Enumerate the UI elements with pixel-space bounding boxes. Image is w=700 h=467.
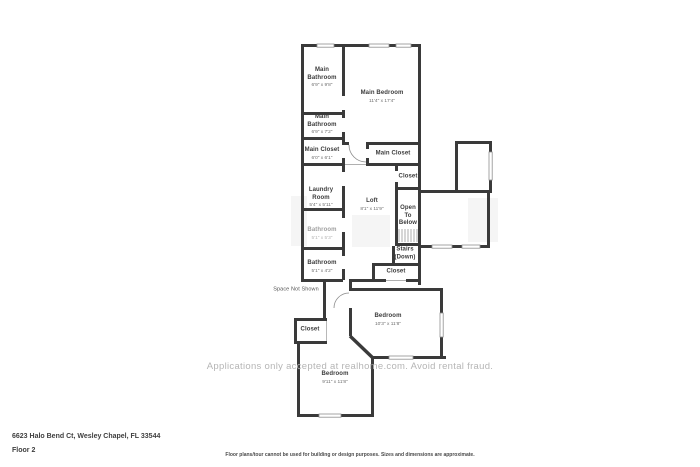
angled-wall [350,336,374,359]
disclaimer-text: Floor plans/tour cannot be used for buil… [0,452,700,458]
property-address: 6623 Halo Bend Ct, Wesley Chapel, FL 335… [12,433,160,440]
stair-treads [399,229,417,242]
watermark-smudges [291,196,498,247]
floor-plan-page: Main Bathroom 6'9" x 9'8" Main Bedroom 1… [0,0,700,467]
floor-plan-drawing [0,0,700,467]
anti-fraud-watermark: Applications only accepted at realhome.c… [0,361,700,372]
